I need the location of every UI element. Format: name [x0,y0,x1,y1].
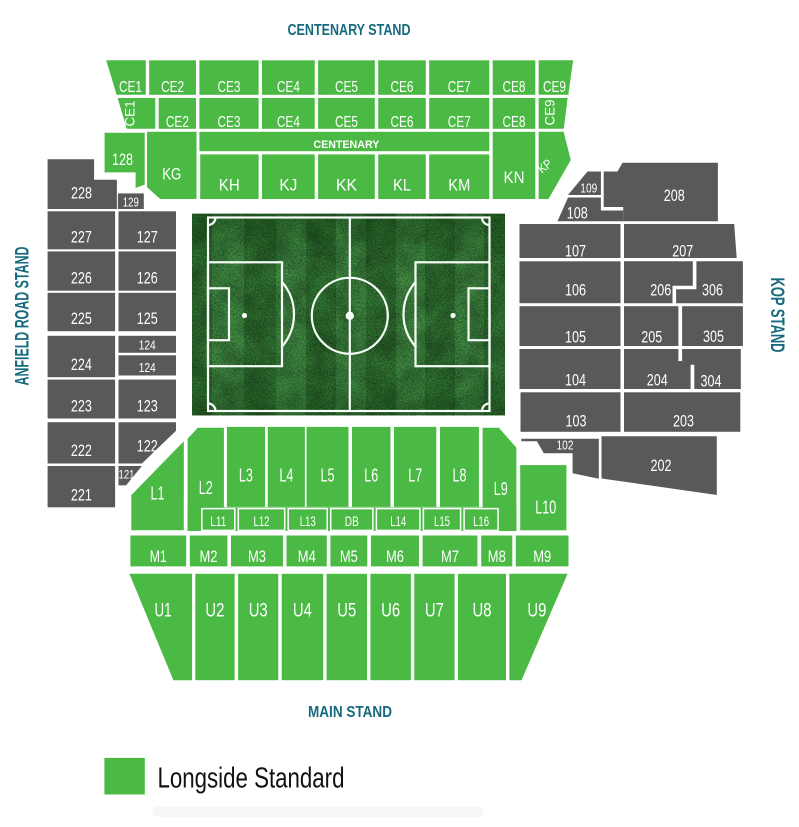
svg-text:L10: L10 [535,498,556,518]
svg-text:305: 305 [703,328,724,346]
svg-text:KOP STAND: KOP STAND [766,278,787,353]
svg-text:205: 205 [641,329,662,347]
svg-text:CE2: CE2 [161,79,184,96]
svg-text:L4: L4 [279,465,293,485]
svg-text:KJ: KJ [279,177,297,195]
svg-text:CE7: CE7 [448,114,471,131]
svg-text:U5: U5 [337,601,356,622]
svg-text:104: 104 [565,371,586,389]
svg-text:M9: M9 [533,547,551,566]
svg-text:L3: L3 [239,465,253,485]
svg-text:ANFIELD ROAD STAND: ANFIELD ROAD STAND [13,247,34,386]
svg-text:KG: KG [162,166,181,184]
svg-text:L7: L7 [408,465,422,485]
svg-text:221: 221 [71,487,92,505]
svg-text:KL: KL [393,177,411,195]
svg-text:108: 108 [567,204,588,222]
svg-text:203: 203 [673,413,694,431]
svg-text:224: 224 [71,356,92,374]
svg-text:KK: KK [336,177,357,195]
svg-text:CE6: CE6 [391,79,414,96]
svg-text:228: 228 [71,184,92,202]
svg-text:M4: M4 [298,547,316,566]
svg-text:CE2: CE2 [166,114,189,131]
svg-text:U9: U9 [527,601,546,622]
svg-text:103: 103 [566,413,587,431]
svg-text:M6: M6 [386,547,404,566]
svg-text:CE4: CE4 [277,79,300,96]
svg-text:L1: L1 [151,484,165,504]
svg-text:MAIN STAND: MAIN STAND [308,704,392,721]
svg-text:M8: M8 [488,547,506,566]
svg-text:M3: M3 [248,547,266,566]
svg-text:KH: KH [219,177,240,195]
svg-text:DB: DB [345,514,359,529]
svg-text:123: 123 [137,397,158,415]
svg-text:KN: KN [504,169,525,187]
svg-text:128: 128 [112,151,133,169]
svg-text:122: 122 [137,437,158,455]
svg-text:M5: M5 [340,547,358,566]
svg-text:L13: L13 [300,514,316,529]
svg-text:Longside Standard: Longside Standard [158,762,345,794]
svg-text:KM: KM [448,177,470,195]
svg-text:206: 206 [650,282,671,300]
svg-text:L2: L2 [199,478,213,498]
svg-text:222: 222 [71,442,92,460]
svg-text:U4: U4 [293,601,312,622]
svg-text:226: 226 [71,269,92,287]
svg-text:U1: U1 [155,601,172,622]
svg-text:121: 121 [119,467,135,481]
svg-text:L8: L8 [453,465,467,485]
svg-text:U3: U3 [249,601,268,622]
svg-text:126: 126 [137,269,158,287]
svg-text:CE9: CE9 [543,79,566,96]
svg-text:CE8: CE8 [503,79,526,96]
svg-text:223: 223 [71,397,92,415]
svg-text:CE8: CE8 [503,114,526,131]
svg-text:CE1: CE1 [123,101,138,127]
svg-text:CE4: CE4 [277,114,300,131]
svg-text:304: 304 [701,373,722,391]
svg-text:CE6: CE6 [391,114,414,131]
svg-text:M7: M7 [441,547,459,566]
svg-text:102: 102 [557,439,574,453]
svg-text:L14: L14 [390,514,406,529]
svg-text:124: 124 [139,338,156,352]
svg-text:124: 124 [139,361,156,375]
svg-text:CE5: CE5 [335,79,358,96]
svg-text:U8: U8 [473,601,492,622]
svg-text:U7: U7 [425,601,444,622]
svg-text:227: 227 [71,228,92,246]
svg-text:L12: L12 [254,514,270,529]
svg-text:L9: L9 [494,479,508,499]
svg-text:M1: M1 [150,547,167,566]
svg-text:L15: L15 [434,514,450,529]
svg-text:CE3: CE3 [218,79,241,96]
svg-text:L6: L6 [364,465,378,485]
svg-text:L5: L5 [321,465,335,485]
svg-text:CE7: CE7 [448,79,471,96]
svg-text:CE3: CE3 [218,114,241,131]
svg-text:CENTENARY STAND: CENTENARY STAND [288,22,411,39]
svg-text:CENTENARY: CENTENARY [313,139,380,151]
svg-text:129: 129 [123,195,139,209]
svg-text:U2: U2 [205,601,224,622]
svg-text:CE5: CE5 [335,114,358,131]
svg-text:CE9: CE9 [543,100,558,126]
svg-text:M2: M2 [200,547,218,566]
svg-text:204: 204 [647,371,668,389]
svg-text:L11: L11 [210,514,226,529]
svg-text:202: 202 [651,457,672,475]
svg-text:U6: U6 [381,601,400,622]
svg-text:207: 207 [672,243,693,261]
svg-text:125: 125 [137,310,158,328]
svg-text:208: 208 [664,187,685,205]
svg-text:107: 107 [565,243,586,261]
svg-text:109: 109 [580,181,597,195]
svg-text:105: 105 [565,329,586,347]
svg-text:CE1: CE1 [119,79,142,96]
svg-text:127: 127 [137,228,158,246]
svg-text:306: 306 [702,282,723,300]
svg-text:106: 106 [565,282,586,300]
svg-text:225: 225 [71,310,92,328]
svg-text:L16: L16 [473,514,489,529]
